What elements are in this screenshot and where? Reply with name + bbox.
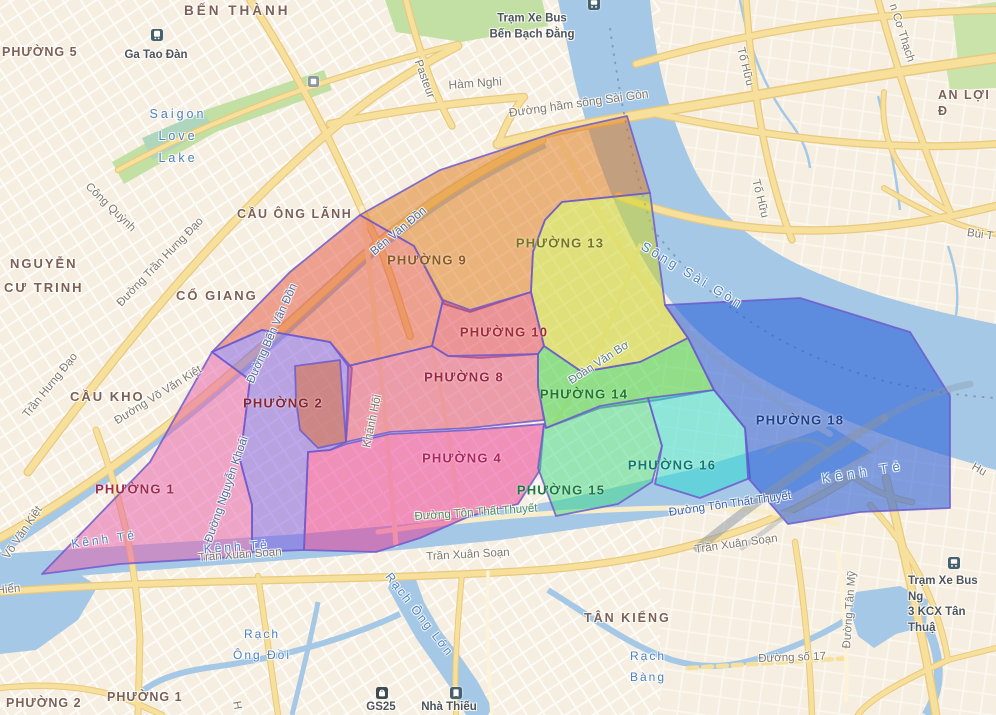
poi-label-gs25[interactable]: GS25 [366, 700, 395, 715]
area-label-tan-kieng: TÂN KIỂNG [584, 610, 671, 626]
ward-label-phuong-10: PHƯỜNG 10 [460, 325, 548, 342]
shop-icon[interactable] [376, 686, 388, 698]
ward-label-phuong-8: PHƯỜNG 8 [424, 370, 504, 387]
area-label-nguyen: NGUYỄN CƯ TRINH [4, 252, 84, 300]
water-label-saigon: Saigon Love Lake [150, 104, 207, 170]
area-label-cau-ong-lanh: CẦU ÔNG LÃNH [237, 206, 352, 222]
area-label-ben-thanh: BẾN THÀNH [184, 2, 291, 20]
bus-icon[interactable] [948, 556, 960, 568]
ward-label-phuong-15: PHƯỜNG 15 [517, 483, 605, 500]
area-label-an-loi-d: AN LỢI Đ [938, 87, 996, 120]
poi-label-tram-xe-bus-ng[interactable]: Trạm Xe Bus Ng 3 KCX Tân Thuậ [908, 574, 996, 636]
ward-label-phuong-1: PHƯỜNG 1 [95, 482, 175, 499]
street-label-duong-so-17: Đường số 17 [758, 650, 826, 667]
area-label-phuong-2: PHƯỜNG 2 [6, 695, 82, 711]
map-canvas[interactable]: PHƯỜNG 2PHƯỜNG 1PHƯỜNG 9PHƯỜNG 13PHƯỜNG … [0, 0, 996, 715]
ward-label-phuong-14: PHƯỜNG 14 [540, 387, 628, 404]
street-label-hien: Hiển [0, 582, 21, 599]
area-label-co-giang: CỔ GIANG [176, 288, 258, 305]
ward-label-phuong-13: PHƯỜNG 13 [516, 236, 604, 253]
poi-label-ga-tao-dan[interactable]: Ga Tao Đàn [124, 48, 187, 64]
area-label-phuong-1: PHƯỜNG 1 [107, 689, 183, 705]
bus-icon[interactable] [588, 0, 600, 9]
transit-icon[interactable] [308, 74, 320, 86]
ward-label-phuong-4: PHƯỜNG 4 [422, 451, 502, 468]
water-label-rach: Rạch Ông Đồi [233, 624, 291, 666]
ward-label-phuong-16: PHƯỜNG 16 [628, 458, 716, 475]
train-icon[interactable] [151, 28, 163, 40]
building-icon[interactable] [450, 686, 462, 698]
ward-label-phuong-2: PHƯỜNG 2 [243, 396, 323, 413]
ward-label-phuong-9: PHƯỜNG 9 [387, 253, 467, 270]
area-label-phuong-5: PHƯỜNG 5 [2, 44, 78, 60]
poi-label-tram-xe-bus[interactable]: Trạm Xe Bus Bến Bạch Đằng [490, 11, 575, 42]
water-label-rach: Rạch Bàng [630, 646, 666, 688]
ward-label-phuong-18: PHƯỜNG 18 [756, 413, 844, 430]
poi-label-nha-thieu[interactable]: Nhà Thiếu [421, 700, 477, 715]
